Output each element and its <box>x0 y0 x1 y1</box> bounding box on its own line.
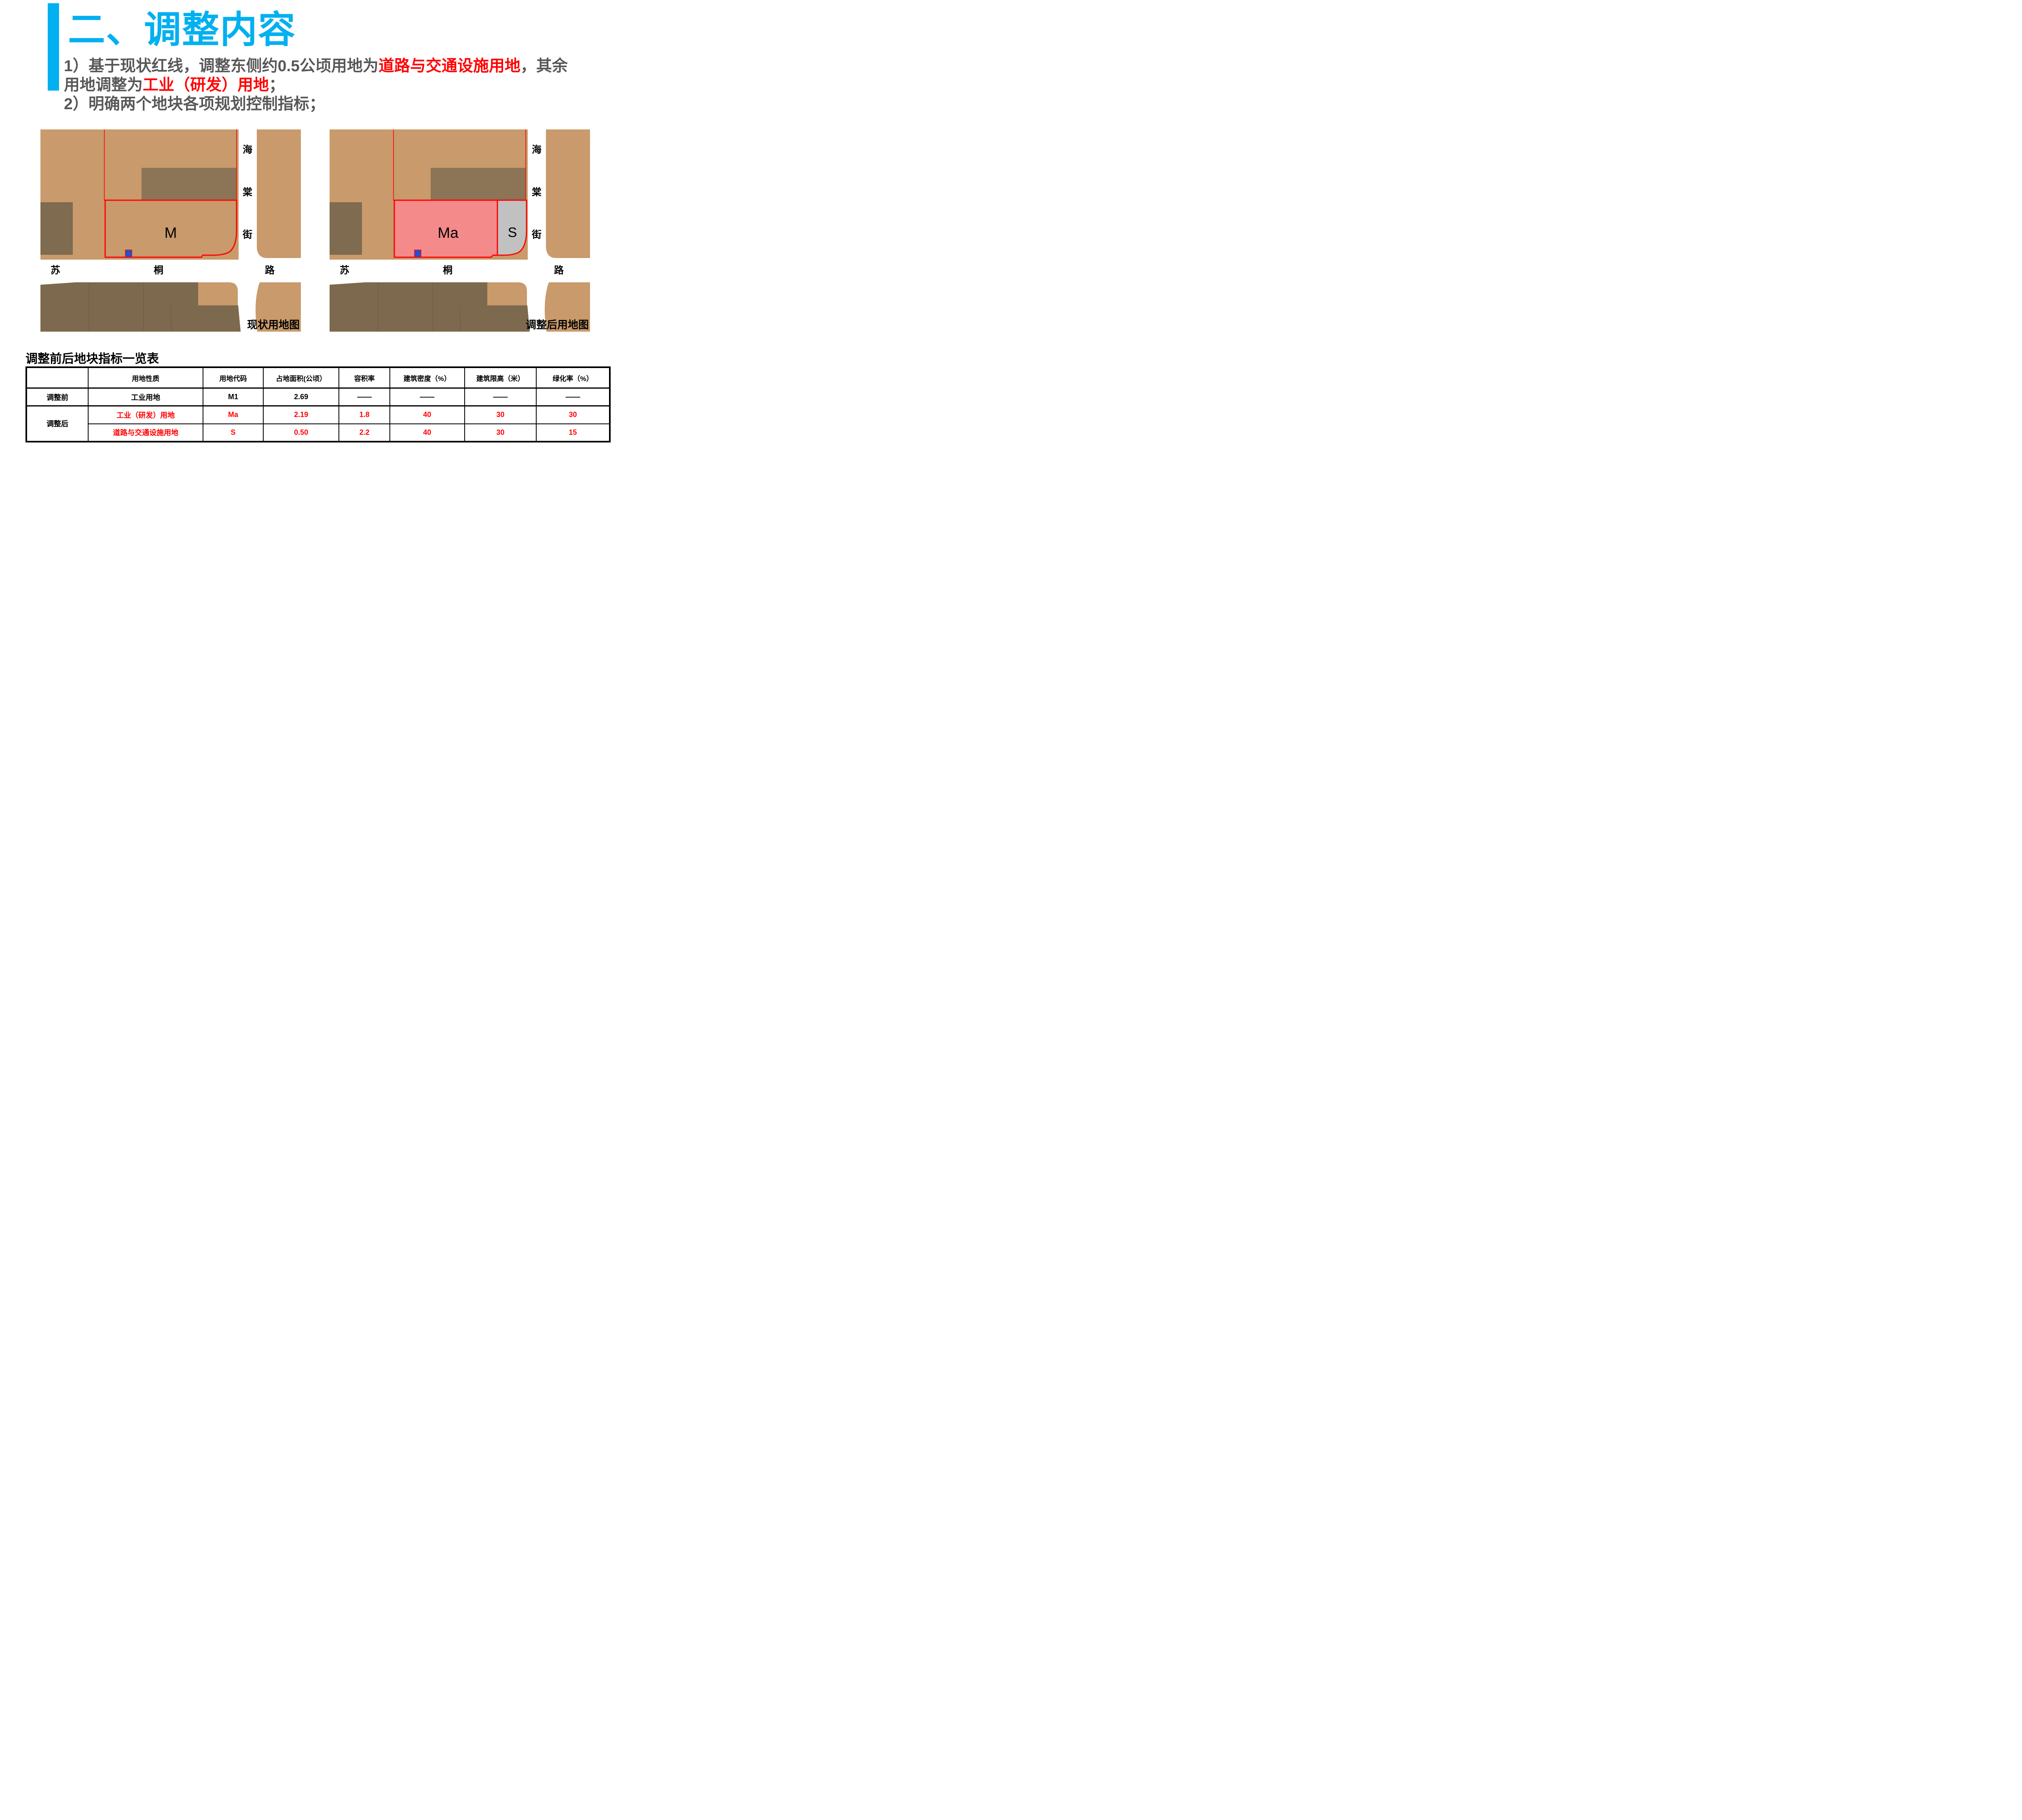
row-group-label: 调整前 <box>26 388 88 406</box>
table-row: 调整后工业（研发）用地Ma2.191.8403030 <box>26 406 610 424</box>
map-adjusted-landuse: MaS海棠街苏桐路调整后用地图 <box>330 129 590 332</box>
indicator-table: 用地性质用地代码占地面积(公顷）容积率建筑密度（%）建筑限高（米）绿化率（%）调… <box>25 366 611 442</box>
table-row: 道路与交通设施用地S0.502.2403015 <box>26 424 610 442</box>
table-cell: 道路与交通设施用地 <box>88 424 203 442</box>
parcel-dark-south <box>40 282 198 332</box>
road-label-lu: 路 <box>265 265 275 276</box>
table-title: 调整前后地块指标一览表 <box>25 349 159 366</box>
table-cell: 2.2 <box>339 424 390 442</box>
table-cell: 30 <box>465 424 536 442</box>
table-header-row: 用地性质用地代码占地面积(公顷）容积率建筑密度（%）建筑限高（米）绿化率（%） <box>26 367 610 388</box>
paragraph-line-1: 1）基于现状红线，调整东侧约0.5公顷用地为道路与交通设施用地，其余 <box>64 57 614 76</box>
table-header-cell <box>26 367 88 388</box>
table-cell: —— <box>536 388 610 406</box>
parcel-label-Ma: Ma <box>438 224 459 241</box>
parcel-tan-east <box>257 129 301 258</box>
table-cell: 工业（研发）用地 <box>88 406 203 424</box>
road-label-tong: 桐 <box>443 265 453 276</box>
plain-text: 1）基于现状红线，调整东侧约0.5公顷用地为 <box>64 57 379 75</box>
table-cell: 30 <box>465 406 536 424</box>
table-cell: 40 <box>390 406 465 424</box>
blue-marker <box>125 250 132 257</box>
blue-marker <box>415 250 421 257</box>
table-header-cell: 用地代码 <box>203 367 263 388</box>
table-cell: 工业用地 <box>88 388 203 406</box>
road-label-su: 苏 <box>51 265 60 276</box>
table-cell: 40 <box>390 424 465 442</box>
parcel-label-S: S <box>508 225 517 240</box>
parcel-dark-south-mid <box>198 305 241 332</box>
slide-canvas: 二、调整内容 1）基于现状红线，调整东侧约0.5公顷用地为道路与交通设施用地，其… <box>0 0 626 470</box>
highlighted-text: 道路与交通设施用地 <box>379 57 520 75</box>
parcel-dark-west <box>40 202 73 255</box>
table-row: 调整前工业用地M12.69———————— <box>26 388 610 406</box>
map-caption-left: 现状用地图 <box>247 319 300 331</box>
plain-text: ，其余 <box>520 57 568 75</box>
table-cell: —— <box>390 388 465 406</box>
map-current-landuse: M海棠街苏桐路现状用地图 <box>40 129 301 332</box>
landuse-map-svg-right: MaS海棠街苏桐路调整后用地图 <box>330 129 590 332</box>
table-header-cell: 建筑密度（%） <box>390 367 465 388</box>
road-label-jie: 街 <box>531 229 541 240</box>
road-label-jie: 街 <box>242 229 252 240</box>
paragraph-line-3: 2）明确两个地块各项规划控制指标； <box>64 95 614 114</box>
map-caption-right: 调整后用地图 <box>526 319 589 331</box>
table-cell: S <box>203 424 263 442</box>
parcel-dark-west <box>330 202 362 255</box>
table-cell: 15 <box>536 424 610 442</box>
table-header-cell: 用地性质 <box>88 367 203 388</box>
page-title: 二、调整内容 <box>68 9 296 52</box>
table-cell: 2.19 <box>263 406 339 424</box>
road-label-su: 苏 <box>340 265 349 276</box>
body-paragraph: 1）基于现状红线，调整东侧约0.5公顷用地为道路与交通设施用地，其余用地调整为工… <box>64 57 614 114</box>
road-label-hai: 海 <box>243 144 252 155</box>
highlighted-text: 工业（研发）用地 <box>143 76 269 94</box>
parcel-tan-south-mid <box>487 282 527 305</box>
table-cell: —— <box>339 388 390 406</box>
parcel-dark-north-block <box>431 168 526 200</box>
road-label-lu: 路 <box>554 265 564 276</box>
parcel-dark-north-block <box>142 168 237 200</box>
table-cell: 2.69 <box>263 388 339 406</box>
table-cell: —— <box>465 388 536 406</box>
landuse-map-svg-left: M海棠街苏桐路现状用地图 <box>40 129 301 332</box>
plain-text: 2）明确两个地块各项规划控制指标； <box>64 95 325 113</box>
table-header-cell: 绿化率（%） <box>536 367 610 388</box>
table-header-cell: 建筑限高（米） <box>465 367 536 388</box>
row-group-label: 调整后 <box>26 406 88 442</box>
parcel-dark-south-mid <box>487 305 530 332</box>
road-label-hai: 海 <box>532 144 541 155</box>
paragraph-line-2: 用地调整为工业（研发）用地； <box>64 76 614 95</box>
table-cell: 1.8 <box>339 406 390 424</box>
parcel-dark-south <box>330 282 487 332</box>
table-cell: M1 <box>203 388 263 406</box>
table-header-cell: 占地面积(公顷） <box>263 367 339 388</box>
table-cell: 30 <box>536 406 610 424</box>
parcel-tan-east <box>546 129 590 258</box>
plain-text: 用地调整为 <box>64 76 143 94</box>
plain-text: ； <box>269 76 285 94</box>
road-label-tang: 棠 <box>242 187 253 198</box>
table-cell: Ma <box>203 406 263 424</box>
road-label-tong: 桐 <box>154 265 163 276</box>
table-header-cell: 容积率 <box>339 367 390 388</box>
parcel-label-M: M <box>165 224 177 241</box>
table-cell: 0.50 <box>263 424 339 442</box>
parcel-tan-south-mid <box>198 282 238 305</box>
road-label-tang: 棠 <box>531 187 542 198</box>
title-accent-bar <box>48 3 59 91</box>
